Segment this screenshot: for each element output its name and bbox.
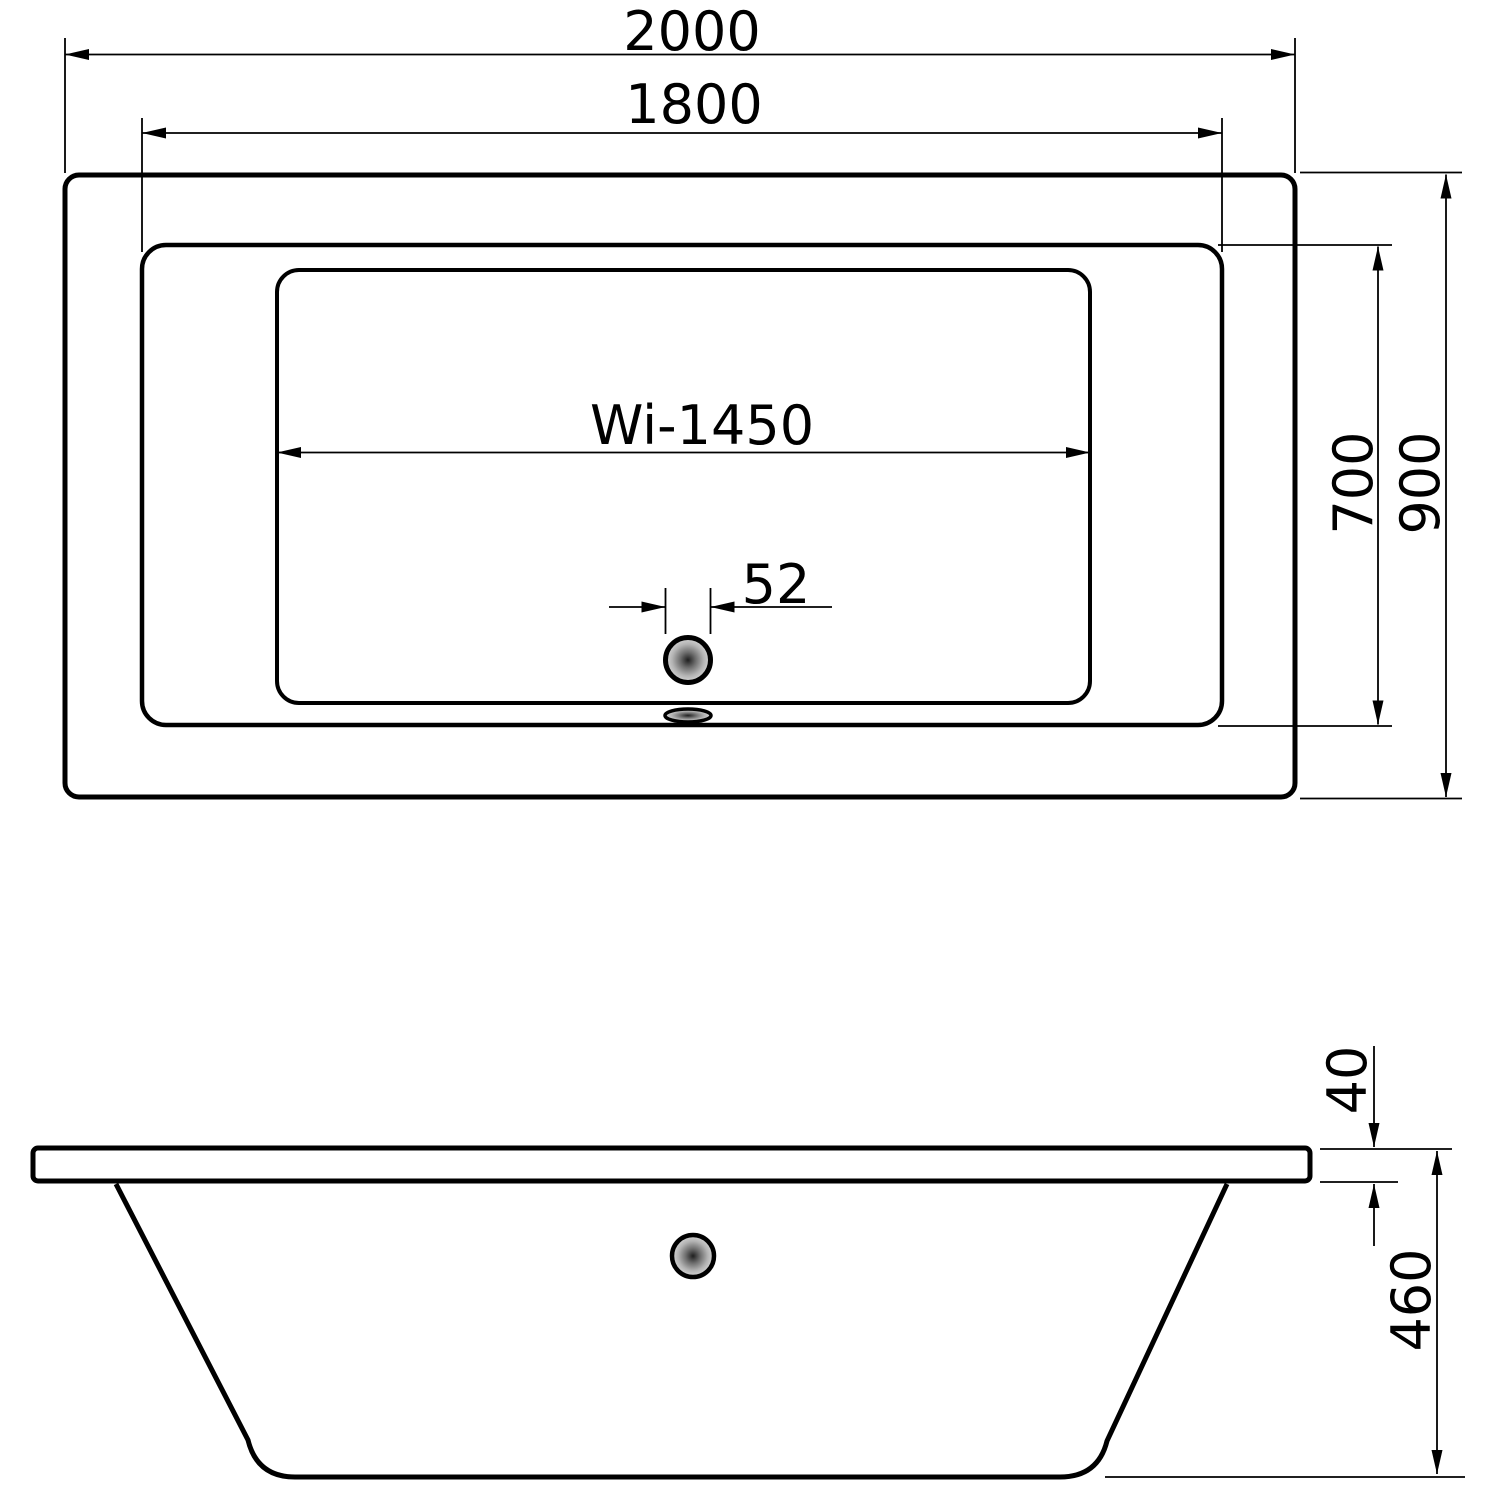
dim-label-rim-thickness: 40 bbox=[1316, 1046, 1379, 1115]
dim-label-interior-width: 700 bbox=[1322, 431, 1385, 534]
dim-label-drain-diameter: 52 bbox=[742, 553, 811, 616]
dim-label-overall-width: 900 bbox=[1389, 431, 1452, 534]
dim-label-height: 460 bbox=[1380, 1248, 1443, 1351]
dim-label-overall-length: 2000 bbox=[623, 0, 760, 63]
drawing-canvas: 2000 1800 Wi-1450 52 700 900 bbox=[0, 0, 1500, 1500]
drawing-background bbox=[0, 0, 1500, 1500]
drain-plan-view bbox=[666, 638, 711, 683]
drain-side-view bbox=[672, 1235, 714, 1277]
overflow-outlet-plan-view bbox=[665, 709, 711, 722]
dim-label-rim-inner-length: 1800 bbox=[625, 73, 762, 136]
bathtub-technical-drawing: 2000 1800 Wi-1450 52 700 900 bbox=[0, 0, 1500, 1500]
dim-label-interior-length: Wi-1450 bbox=[590, 394, 814, 457]
